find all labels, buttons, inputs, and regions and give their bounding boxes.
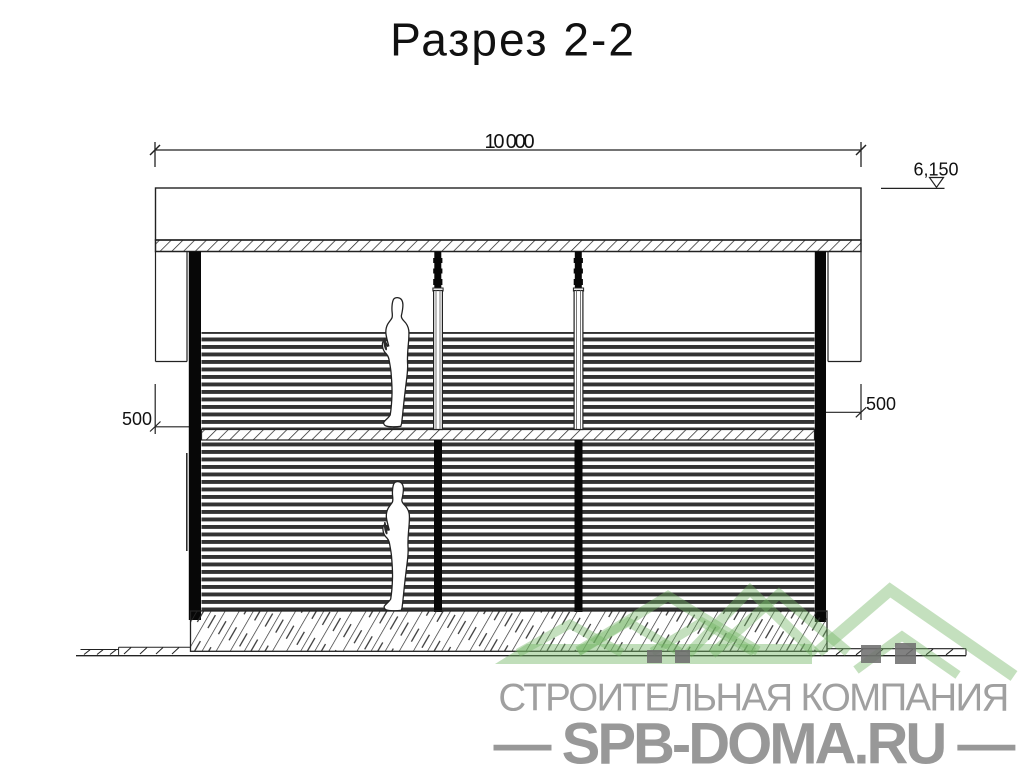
svg-text:500: 500 (866, 394, 896, 414)
svg-text:— SPB-DOMA.RU —: — SPB-DOMA.RU — (494, 712, 1016, 768)
svg-text:Разрез 2-2: Разрез 2-2 (390, 14, 636, 66)
svg-text:10 000: 10 000 (485, 131, 535, 153)
svg-text:6,150: 6,150 (914, 160, 959, 180)
svg-text:500: 500 (122, 409, 152, 429)
